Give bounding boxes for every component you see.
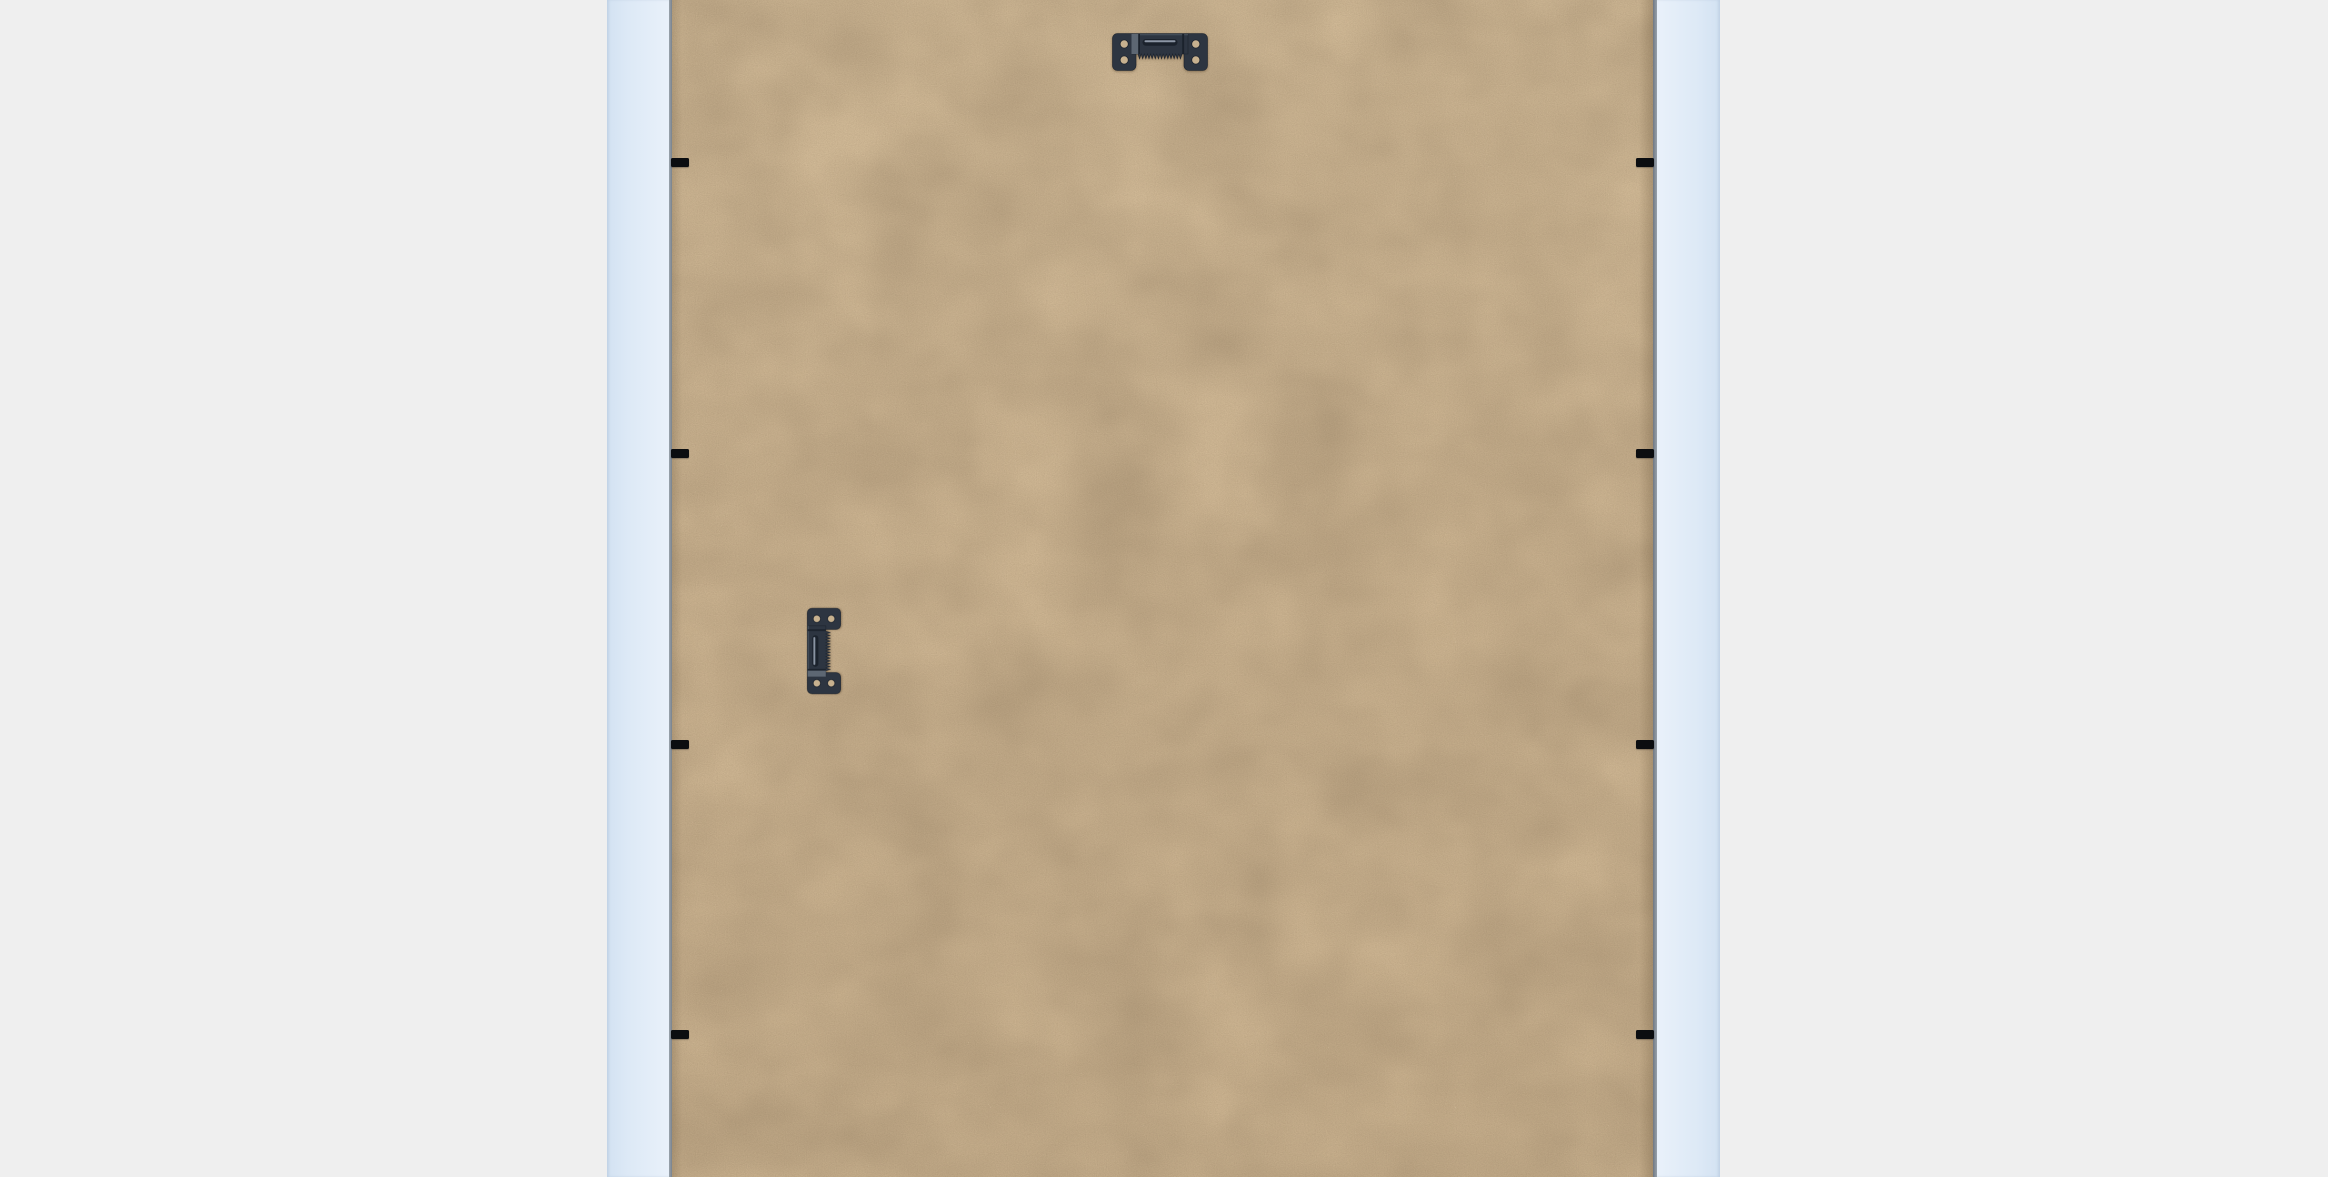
board-texture xyxy=(672,0,1653,1177)
sawtooth-hanger-side xyxy=(807,608,841,694)
sawtooth-hanger-icon xyxy=(807,608,841,694)
flex-tab xyxy=(1636,1030,1654,1039)
board-edge-shadow-right xyxy=(1639,0,1653,1177)
frame-back-scene xyxy=(0,0,2328,1177)
sawtooth-hanger-top xyxy=(1112,33,1208,71)
flex-tab xyxy=(671,158,689,167)
flex-tab xyxy=(1636,158,1654,167)
flex-tab xyxy=(1636,740,1654,749)
frame-rail-right xyxy=(1657,0,1720,1177)
board-edge-shadow-left xyxy=(672,0,682,1177)
board-edge-line-left xyxy=(669,0,672,1177)
sawtooth-hanger-icon xyxy=(1112,33,1208,71)
flex-tab xyxy=(671,740,689,749)
board-edge-line-right xyxy=(1653,0,1657,1177)
flex-tab xyxy=(1636,449,1654,458)
flex-tab xyxy=(671,1030,689,1039)
backing-board xyxy=(672,0,1653,1177)
flex-tab xyxy=(671,449,689,458)
frame-rail-left xyxy=(607,0,669,1177)
